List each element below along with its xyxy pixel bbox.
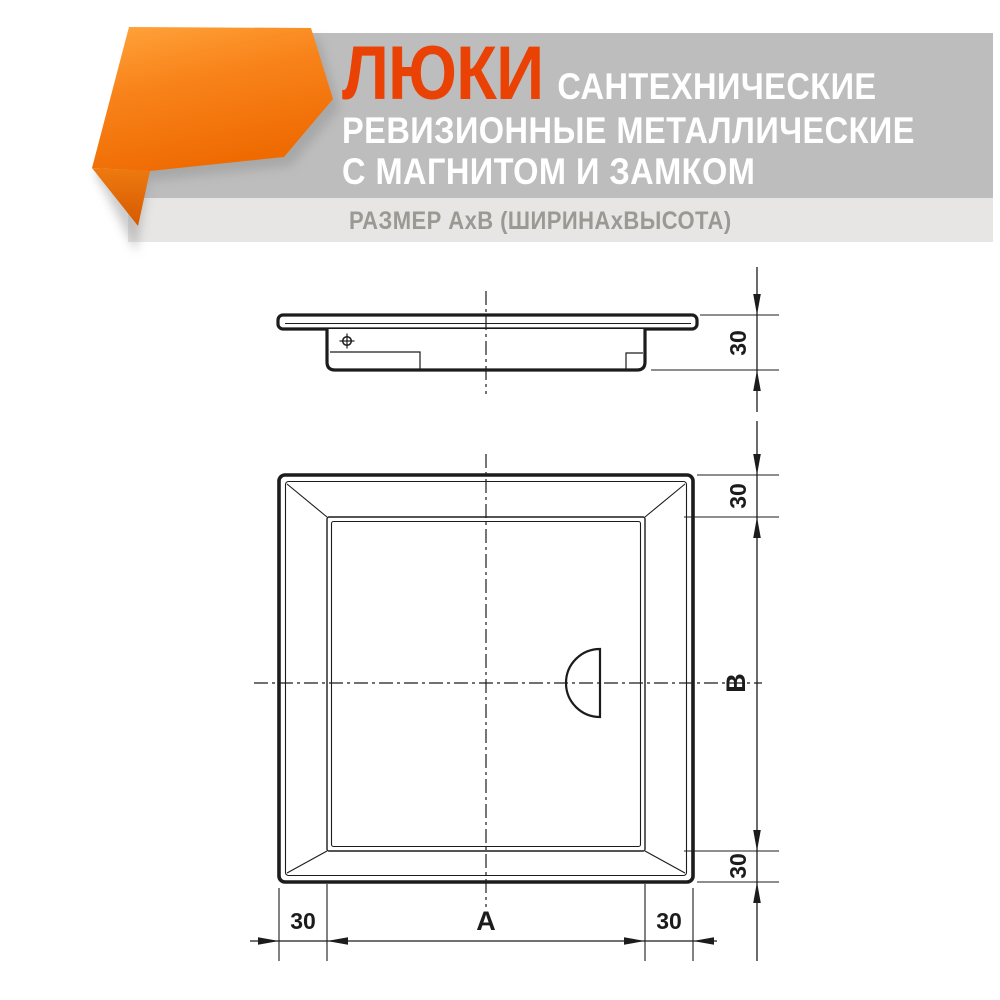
page: ЛЮКИСАНТЕХНИЧЕСКИЕ РЕВИЗИОННЫЕ МЕТАЛЛИЧЕ…: [0, 0, 1000, 1000]
headline-line3: С МАГНИТОМ И ЗАМКОМ: [342, 153, 755, 190]
headline-line1: САНТЕХНИЧЕСКИЕ: [557, 66, 876, 107]
headline: ЛЮКИСАНТЕХНИЧЕСКИЕ: [342, 36, 877, 112]
headline-line2: РЕВИЗИОННЫЕ МЕТАЛЛИЧЕСКИЕ: [342, 112, 915, 149]
brand-title: ЛЮКИ: [342, 31, 543, 116]
size-note: РАЗМЕР АхВ (ШИРИНАхВЫСОТА): [349, 209, 732, 234]
